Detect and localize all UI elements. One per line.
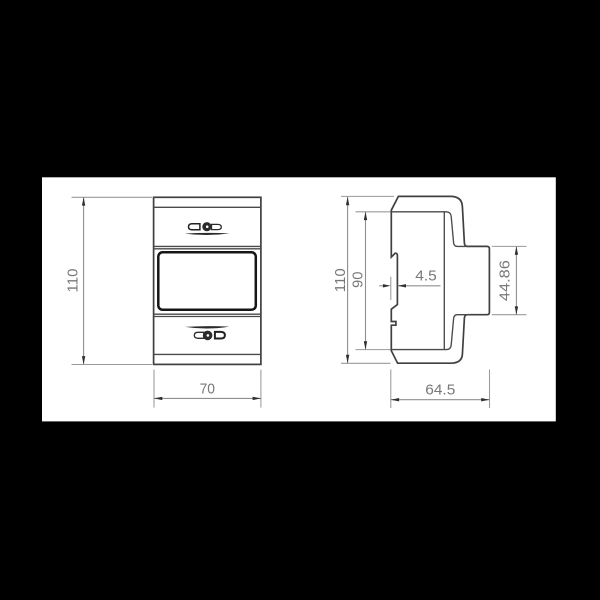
svg-text:70: 70	[200, 380, 215, 397]
svg-text:4.5: 4.5	[415, 268, 437, 285]
svg-text:90: 90	[350, 272, 367, 289]
svg-text:64.5: 64.5	[425, 381, 455, 398]
svg-text:110: 110	[332, 268, 349, 292]
svg-text:44.86: 44.86	[497, 260, 514, 301]
svg-text:110: 110	[65, 269, 82, 293]
